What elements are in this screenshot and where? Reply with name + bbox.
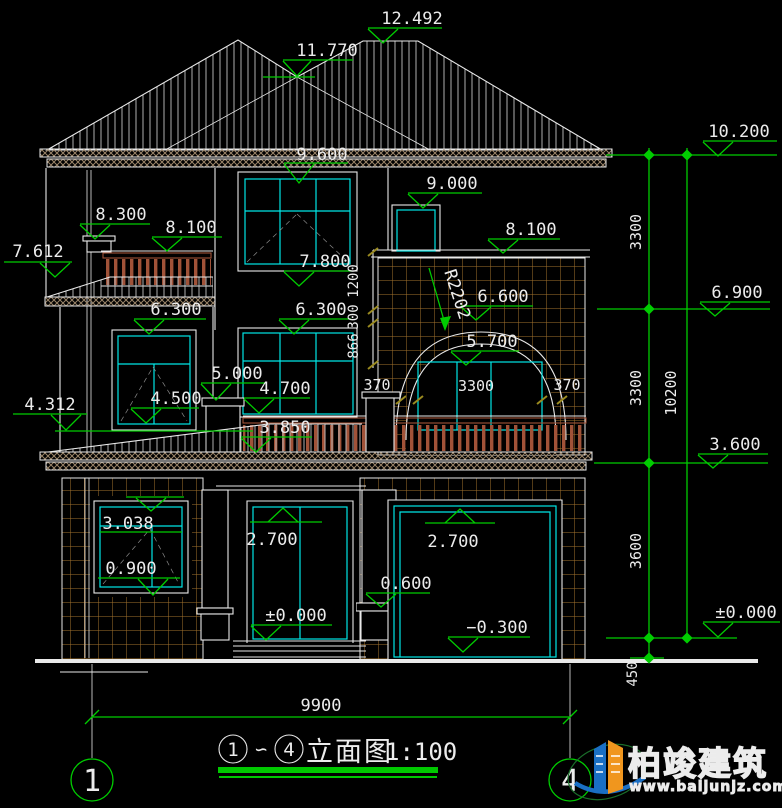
lower-eave-band-lower: [46, 462, 586, 470]
drawing-title: 1 ∽ 4 立面图 1:100: [218, 735, 457, 778]
title-scale: 1:100: [385, 738, 457, 766]
dim-label: 370: [553, 376, 580, 394]
dim-label: 3300: [458, 377, 494, 395]
level-label: 3.600: [709, 435, 760, 455]
level-label: 0.600: [380, 574, 431, 594]
level-label: 3.038: [102, 514, 153, 534]
railing-rail: [103, 253, 211, 258]
level-label: ±0.000: [265, 606, 326, 626]
logo-building-orange: [608, 740, 623, 794]
lower-roof-hatch: [48, 424, 362, 452]
width-dim: 9900 1 4: [71, 664, 591, 801]
level-label: 9.600: [296, 145, 347, 165]
dim-label: 1200: [346, 264, 362, 298]
dim-label: 300: [346, 304, 362, 329]
level-label: 12.492: [381, 9, 442, 29]
level-label: 5.000: [211, 364, 262, 384]
dim-label: 9900: [301, 696, 342, 716]
post-cap: [83, 236, 115, 241]
level-floor-right: ±0.000: [606, 603, 780, 638]
dim-label: 3300: [627, 370, 645, 406]
dim-label: 3600: [627, 533, 645, 569]
title-to: 4: [283, 739, 294, 761]
dim-label: 10200: [662, 370, 680, 415]
title-name: 立面图: [306, 737, 393, 768]
chimney-top: [392, 205, 440, 251]
level-label: 3.850: [259, 418, 310, 438]
level-left-balcony: 8.100: [152, 218, 222, 251]
level-ridge: 12.492: [368, 9, 443, 43]
level-label: 6.600: [477, 287, 528, 307]
level-label: 2.700: [246, 530, 297, 550]
title-underline-thin: [219, 776, 437, 778]
brand-logo: 柏竣建筑 www.baijunjz.com: [561, 735, 782, 808]
grid-bubble-label: 1: [83, 764, 101, 799]
level-label: ±0.000: [715, 603, 776, 623]
level-second-floor-right: 6.900: [597, 283, 770, 316]
right-dim-chains: 3300 3300 3600 10200 450: [625, 148, 693, 687]
level-label: −0.300: [466, 618, 527, 638]
chimney: [366, 398, 394, 452]
title-from: 1: [227, 739, 238, 761]
lower-eave-band-upper: [40, 452, 592, 460]
level-label: 2.700: [427, 532, 478, 552]
pedestal-cap: [202, 398, 244, 406]
level-label: 9.000: [426, 174, 477, 194]
level-label: 5.700: [466, 332, 517, 352]
elevation-drawing-canvas: 12.492 11.770 10.200 9.600 9.000 8.300 8…: [0, 0, 782, 808]
level-label: 7.612: [12, 242, 63, 262]
title-tilde: ∽: [255, 737, 267, 761]
level-chimney-top: 9.000: [408, 174, 482, 208]
level-label: 6.300: [295, 300, 346, 320]
level-label: 8.100: [165, 218, 216, 238]
level-first-roof-right: 3.600: [594, 435, 768, 468]
level-label: 7.800: [299, 252, 350, 272]
level-left-roof: 7.612: [4, 242, 72, 277]
logo-building-blue: [594, 742, 606, 794]
level-label: 4.500: [150, 389, 201, 409]
post: [87, 241, 111, 252]
level-label: 11.770: [296, 41, 357, 61]
dim-label: 450: [625, 661, 641, 686]
small-roof-hatch: [47, 277, 213, 297]
level-label: 8.100: [505, 220, 556, 240]
level-label: 0.900: [105, 559, 156, 579]
level-label: 6.900: [711, 283, 762, 303]
entry-steps: [233, 641, 366, 657]
level-label: 6.300: [150, 300, 201, 320]
level-eave-right: 10.200: [606, 122, 777, 156]
dim-label: 866: [346, 333, 362, 358]
title-underline-thick: [218, 767, 438, 773]
level-label: 4.700: [259, 379, 310, 399]
level-label: 4.312: [24, 395, 75, 415]
porch-column-left: [197, 490, 233, 640]
logo-brand-text: 柏竣建筑: [628, 744, 768, 783]
dim-label: 370: [363, 376, 390, 394]
dim-label: 3300: [627, 214, 645, 250]
level-label: 8.300: [95, 205, 146, 225]
level-label: 10.200: [708, 122, 769, 142]
level-left-post: 8.300: [80, 205, 150, 239]
level-flat-roof-right: 8.100: [488, 220, 560, 253]
logo-url-text: www.baijunjz.com: [629, 779, 782, 795]
